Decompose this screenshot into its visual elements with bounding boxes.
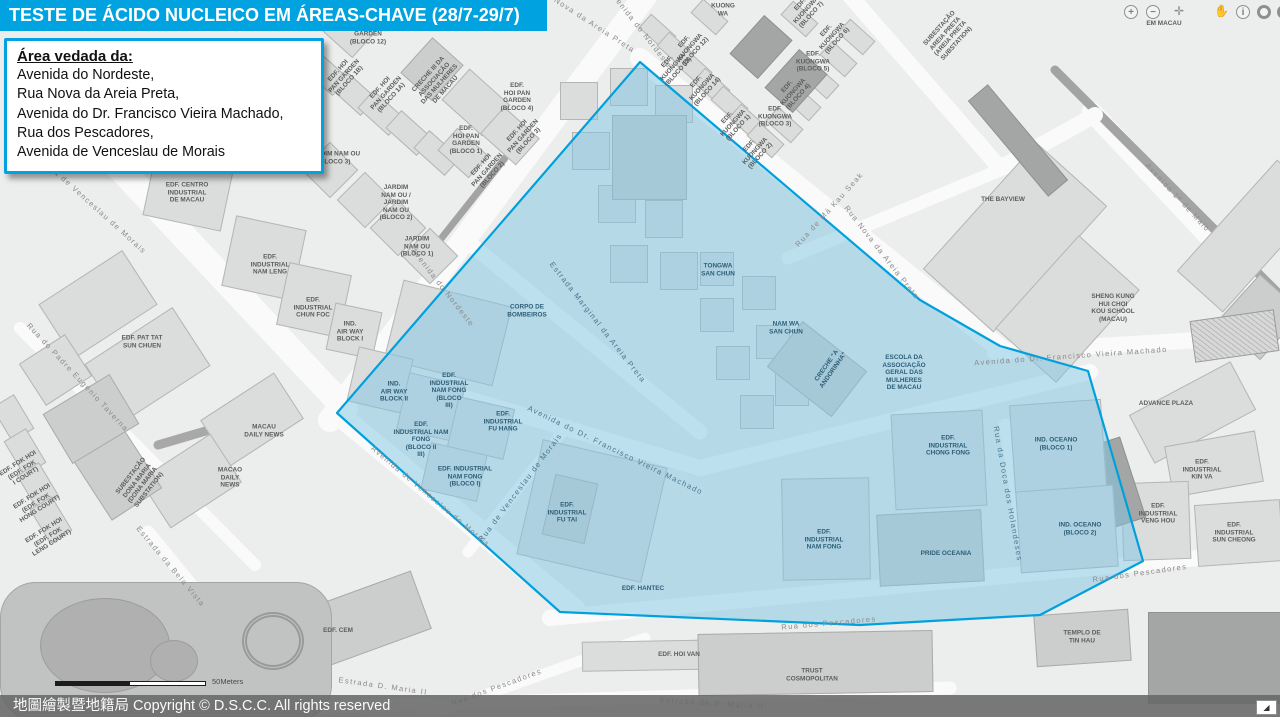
building-label: EDF. FOK HOI (EDF. FOK HONG COURT) <box>11 481 62 524</box>
building-label: EDF. INDUSTRIAL NAM FONG (BLOCO II III) <box>394 421 449 459</box>
building-label: EDF. KUONGWA (BLOCO 2) <box>735 131 775 171</box>
building-label: EDF. CEM <box>323 627 353 635</box>
building-label: EDF. HOI PAN GARDEN (BLOCO 1B) <box>321 53 366 100</box>
building-label: EDF. HOI PAN GARDEN (BLOCO 3) <box>500 113 545 160</box>
building-label: JARDIM NAM OU (BLOCO 1) <box>401 236 434 259</box>
building-label: EDF. INDUSTRIAL CHUN FOC <box>294 297 333 320</box>
building-label: EDF. KUONGWA (BLOCO 3) <box>758 106 792 129</box>
scale-bar-empty-segment <box>129 681 206 686</box>
building-label: GARDEN (BLOCO 12) <box>350 30 386 45</box>
legend-street: Rua Nova da Areia Preta, <box>17 85 311 104</box>
building-label: EDF. INDUSTRIAL CHONG FONG <box>926 435 970 458</box>
building-label: IND. OCEANO (BLOCO 2) <box>1059 521 1102 536</box>
building-label: EDF. INDUSTRIAL FU HANG <box>484 411 523 434</box>
building-label: SUBESTAÇÃO DONA MARIA (DONA MARIA SUBSTA… <box>114 456 165 509</box>
building-label: KUONG WA <box>711 2 735 17</box>
scale-bar-label: 50Meters <box>212 677 243 686</box>
building-label: TONGWA SAN CHUN <box>701 262 735 277</box>
building-label: SHENG KUNG HUI CHOI KOU SCHOOL (MACAU) <box>1091 293 1134 323</box>
building-label: EDF. KUONGWA (BLOCO 7) <box>786 0 826 30</box>
building-label: EDF. INDUSTRIAL KIN VA <box>1183 459 1222 482</box>
zoom-out-icon[interactable]: − <box>1146 5 1160 19</box>
building-label: THE BAYVIEW <box>981 196 1025 204</box>
building-label: EDF. HOI PAN GARDEN (BLOCO 1) <box>450 125 483 155</box>
building-label: IND. OCEANO (BLOCO 1) <box>1035 436 1078 451</box>
street-label: Rua de Má Kau Seak <box>794 171 866 249</box>
legend-street: Rua dos Pescadores, <box>17 124 311 143</box>
building-label: TRUST COSMOPOLITAN <box>786 667 838 682</box>
building-label: CORPO DE BOMBEIROS <box>507 303 546 318</box>
building-label: EM MACAU <box>1146 20 1181 28</box>
building-label: EDF. HOI PAN GARDEN (BLOCO 2) <box>464 147 509 194</box>
building-label: SUBESTAÇÃO AREIA PRETA (AREIA PRETA SUBS… <box>922 9 974 62</box>
building-label: EDF. INDUSTRIAL NAM LENG <box>251 254 290 277</box>
street-label: Rua Nova da Areia Preta <box>842 204 921 301</box>
street-label: Rua do Padre Eugénio Taverna <box>24 322 129 434</box>
copyright-bar: 地圖繪製暨地籍局 Copyright © D.S.C.C. All rights… <box>0 695 1280 717</box>
street-label: Avenida do Dr. Francisco Vieira Machado <box>526 404 704 497</box>
building-label: EDF. KUONGWA (BLOCO 14) <box>681 66 722 108</box>
building-label: EDF. PAT TAT SUN CHUEN <box>122 334 163 349</box>
legend-street: Avenida de Venceslau de Morais <box>17 143 311 162</box>
legend-street: Avenida do Dr. Francisco Vieira Machado, <box>17 105 311 124</box>
building-label: MACAO DAILY NEWS <box>218 467 242 490</box>
street-label: Rua da Doca dos Holandeses <box>991 426 1024 563</box>
legend-street: Avenida do Nordeste, <box>17 66 311 85</box>
street-label: Avenida de Venceslau de Morais <box>369 445 492 550</box>
street-label: Rua Nova da Areia Preta <box>534 0 636 55</box>
building-label: IND. AIR WAY BLOCK II <box>380 381 408 404</box>
prev-view-icon[interactable] <box>1257 5 1271 19</box>
bottom-strip <box>0 717 1280 721</box>
street-label: Rua dos Pescadores <box>1092 563 1188 585</box>
building-label: TEMPLO DE TIN HAU <box>1063 629 1100 644</box>
building-label: NAM WA SAN CHUN <box>769 320 803 335</box>
building-label: EDF. KUONGWA (BLOCO 5) <box>796 51 830 74</box>
building-label: EDF. FOK HOI (EDF. FOK LENG COURT) <box>23 516 73 559</box>
building-label: JARDIM NAM OU / JARDIM NAM OU (BLOCO 2) <box>380 184 413 222</box>
hand-tool-icon[interactable]: ✋ <box>1214 5 1228 19</box>
street-label: Estrada Marginal da Areia Preta <box>547 261 647 386</box>
building-label: EDF. INDUSTRIAL NAM FONG <box>805 529 844 552</box>
street-label: Rua de Venceslau de Morais <box>477 432 564 544</box>
closed-area-legend: Área vedada da: Avenida do Nordeste,Rua … <box>4 38 324 174</box>
street-label: Avenida do Nordeste <box>408 247 475 329</box>
info-icon[interactable]: i <box>1236 5 1250 19</box>
street-label: Avenida do Dr. Francisco Vieira Machado <box>974 346 1168 368</box>
street-label: Rua dos Pescadores <box>781 615 877 632</box>
building-label: EDF. KUONGWA (BLOCO 12) <box>669 26 710 68</box>
building-label: EDF. CENTRO INDUSTRIAL DE MACAU <box>166 182 209 205</box>
expand-icon[interactable]: ◢ <box>1256 700 1277 715</box>
building-label: EDF. INDUSTRIAL NAM FONG (BLOCO I) <box>438 466 492 489</box>
building-label: EDF. INDUSTRIAL VENG HOU <box>1139 503 1178 526</box>
map-viewport[interactable]: Avenida do NordesteRua Nova da Areia Pre… <box>0 0 1280 721</box>
building-label: ADVANCE PLAZA <box>1139 400 1193 408</box>
street-label: Estrada da Bela Vista <box>134 525 207 609</box>
building-label: EDF. KUONGWA (BLOCO 6) <box>812 16 852 56</box>
building-label: EDF. HANTEC <box>622 585 664 593</box>
building-label: EDF. INDUSTRIAL NAM FONG (BLOCO III) <box>430 372 469 410</box>
page-title: TESTE DE ÁCIDO NUCLEICO EM ÁREAS-CHAVE (… <box>0 0 547 31</box>
building-label: CRECHE III DA ASSOCIAÇÃO DAS MULHERES DE… <box>409 53 466 111</box>
building-label: EDF. INDUSTRIAL FU TAI <box>548 502 587 525</box>
scale-bar-filled-segment <box>55 681 129 686</box>
building-label: EDF. FOK HOI (EDF. FOK I COURT) <box>0 449 46 491</box>
building-label: MACAU DAILY NEWS <box>244 423 283 438</box>
building-label: EDF. HOI VAN <box>658 651 700 659</box>
building-label: EDF. KUONGWA (BLOCO 1) <box>713 103 753 143</box>
zoom-in-icon[interactable]: + <box>1124 5 1138 19</box>
street-label: Avenida 1º de Maio <box>1143 162 1211 234</box>
building-label: IND. AIR WAY BLOCK I <box>337 321 364 344</box>
building-label: ESCOLA DA ASSOCIAÇÃO GERAL DAS MULHERES … <box>882 354 925 392</box>
building-label: EDF. HOI PAN GARDEN (BLOCO 4) <box>501 82 534 112</box>
legend-heading: Área vedada da: <box>17 48 311 65</box>
pan-move-icon[interactable]: ✛ <box>1172 5 1186 19</box>
building-label: EDF. KUONGWA (BLOCO 13) <box>652 46 693 88</box>
building-label: EDF. HOI PAN GARDEN (BLOCO 1A) <box>363 70 408 117</box>
building-label: EDF. KUONGWA (BLOCO 4) <box>773 72 813 112</box>
building-label: CRECHE "A ANDORINHA" <box>812 346 849 389</box>
street-label: Avenida do Nordeste <box>606 0 673 71</box>
building-label: EDF. INDUSTRIAL SUN CHEONG <box>1212 522 1255 545</box>
legend-street-list: Avenida do Nordeste,Rua Nova da Areia Pr… <box>17 66 311 162</box>
building-label: PRIDE OCEANIA <box>921 550 972 558</box>
